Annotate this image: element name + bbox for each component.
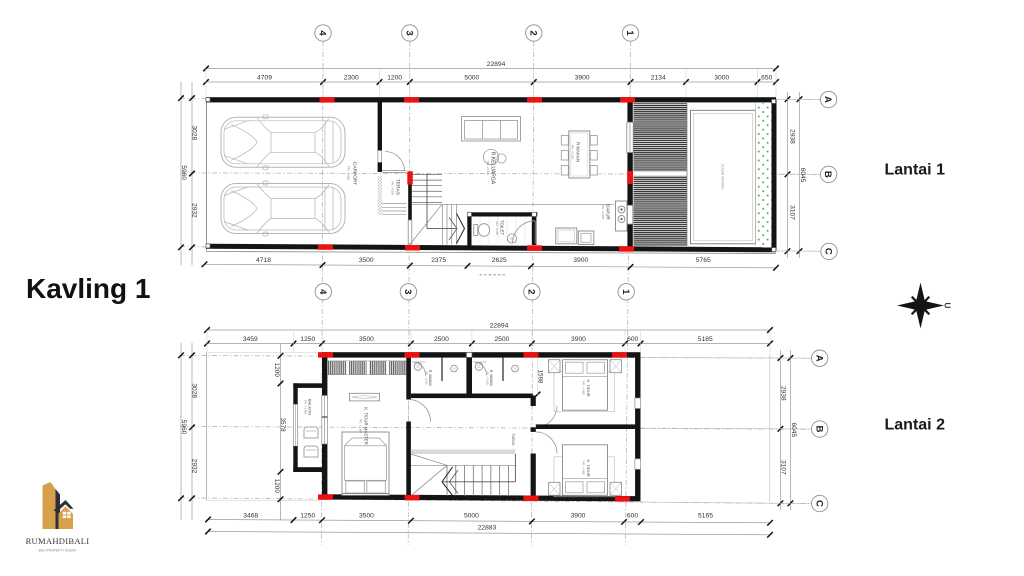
svg-text:3900: 3900 <box>571 336 586 343</box>
svg-text:PFL + 3.480: PFL + 3.480 <box>582 381 585 395</box>
svg-text:PFL + 3.480: PFL + 3.480 <box>359 419 363 434</box>
svg-text:3107: 3107 <box>789 205 796 220</box>
svg-text:3028: 3028 <box>190 383 197 398</box>
svg-text:B: B <box>822 171 833 178</box>
svg-text:Lantai 1: Lantai 1 <box>885 162 946 179</box>
svg-text:3459: 3459 <box>243 336 258 343</box>
svg-text:5960: 5960 <box>180 420 187 435</box>
svg-text:4: 4 <box>317 30 328 36</box>
svg-text:3578: 3578 <box>279 417 286 432</box>
svg-text:R MAKAN: R MAKAN <box>575 142 580 162</box>
svg-text:22894: 22894 <box>490 323 509 330</box>
svg-text:PFL + 3.430: PFL + 3.430 <box>486 371 489 385</box>
svg-text:PFL + 0.000: PFL + 0.000 <box>601 205 605 220</box>
svg-text:1250: 1250 <box>300 512 315 519</box>
svg-text:3900: 3900 <box>575 74 590 81</box>
svg-text:5185: 5185 <box>698 336 713 343</box>
svg-text:22894: 22894 <box>487 61 506 68</box>
svg-text:600: 600 <box>627 512 638 519</box>
svg-text:5765: 5765 <box>696 257 711 264</box>
svg-text:BALI PROPERTY AGENT: BALI PROPERTY AGENT <box>39 548 77 552</box>
svg-text:PFL + 0.000: PFL + 0.000 <box>486 161 490 176</box>
svg-text:1: 1 <box>624 30 635 36</box>
svg-text:C: C <box>813 500 824 507</box>
svg-text:3000: 3000 <box>714 74 729 81</box>
svg-text:BALKON: BALKON <box>308 399 313 415</box>
svg-text:1200: 1200 <box>273 363 280 378</box>
svg-text:3500: 3500 <box>359 257 374 264</box>
svg-text:2932: 2932 <box>190 459 197 474</box>
svg-text:K. TIDUR MASTER: K. TIDUR MASTER <box>363 407 368 444</box>
svg-text:1250: 1250 <box>300 336 315 343</box>
svg-text:Lantai 2: Lantai 2 <box>885 417 946 434</box>
svg-text:3028: 3028 <box>190 125 197 140</box>
svg-text:4: 4 <box>317 289 328 295</box>
svg-text:2625: 2625 <box>492 257 507 264</box>
svg-text:PFL + 0.000: PFL + 0.000 <box>571 145 575 160</box>
svg-text:5165: 5165 <box>698 512 713 519</box>
svg-text:KOLAM RENANG: KOLAM RENANG <box>720 164 724 190</box>
svg-text:PFL - 0.050: PFL - 0.050 <box>391 181 395 195</box>
svg-text:B: B <box>813 426 824 433</box>
svg-text:3468: 3468 <box>243 512 258 519</box>
svg-text:R. MANDI: R. MANDI <box>428 370 432 386</box>
svg-text:2500: 2500 <box>494 336 509 343</box>
svg-text:DAPUR: DAPUR <box>605 204 610 219</box>
svg-text:R. MANDI: R. MANDI <box>489 370 493 386</box>
svg-text:3107: 3107 <box>780 460 787 475</box>
svg-text:U: U <box>943 303 952 309</box>
svg-text:TOILET: TOILET <box>499 220 504 236</box>
svg-text:6045: 6045 <box>790 422 797 437</box>
svg-text:3: 3 <box>402 289 413 294</box>
svg-text:3: 3 <box>403 30 414 35</box>
svg-text:3900: 3900 <box>571 512 586 519</box>
svg-text:3900: 3900 <box>573 257 588 264</box>
svg-text:A: A <box>813 355 824 362</box>
svg-text:2: 2 <box>526 289 537 294</box>
svg-text:PFL + 3.480: PFL + 3.480 <box>304 400 308 415</box>
svg-text:5000: 5000 <box>464 512 479 519</box>
svg-text:2938: 2938 <box>789 129 796 144</box>
svg-text:2: 2 <box>527 30 538 35</box>
svg-text:650: 650 <box>761 74 772 81</box>
svg-text:2500: 2500 <box>434 336 449 343</box>
svg-text:R.KELUARGA: R.KELUARGA <box>490 152 496 185</box>
svg-text:2134: 2134 <box>651 74 666 81</box>
svg-text:K. TIDUR: K. TIDUR <box>586 379 591 396</box>
svg-text:2938: 2938 <box>780 386 787 401</box>
svg-text:6045: 6045 <box>799 168 806 183</box>
svg-text:PFL + 3.430: PFL + 3.430 <box>425 371 428 385</box>
svg-text:PFL - 0.050: PFL - 0.050 <box>495 221 499 235</box>
svg-text:CARPORT: CARPORT <box>351 162 357 185</box>
svg-text:PFL + 3.480: PFL + 3.480 <box>582 461 585 475</box>
svg-text:1200: 1200 <box>273 479 280 494</box>
svg-text:TURUN: TURUN <box>511 434 515 446</box>
svg-text:1: 1 <box>620 289 631 295</box>
svg-text:22883: 22883 <box>478 524 497 531</box>
svg-text:4709: 4709 <box>257 74 272 81</box>
svg-text:3500: 3500 <box>359 512 374 519</box>
svg-text:2375: 2375 <box>431 257 446 264</box>
svg-text:RUMAHDIBALI: RUMAHDIBALI <box>26 536 90 546</box>
svg-text:2932: 2932 <box>190 203 197 218</box>
svg-text:PFL - 0.050: PFL - 0.050 <box>347 166 351 180</box>
svg-text:600: 600 <box>627 336 638 343</box>
svg-text:A: A <box>822 96 833 103</box>
svg-text:2300: 2300 <box>344 74 359 81</box>
svg-text:5000: 5000 <box>464 74 479 81</box>
svg-text:C: C <box>823 248 834 255</box>
svg-text:4718: 4718 <box>256 257 271 264</box>
svg-text:TERAS: TERAS <box>394 179 400 195</box>
svg-text:1200: 1200 <box>387 74 402 81</box>
svg-text:3500: 3500 <box>359 336 374 343</box>
svg-text:K. TIDUR: K. TIDUR <box>586 459 591 476</box>
svg-text:Kavling 1: Kavling 1 <box>26 273 150 304</box>
svg-text:5960: 5960 <box>180 165 187 180</box>
